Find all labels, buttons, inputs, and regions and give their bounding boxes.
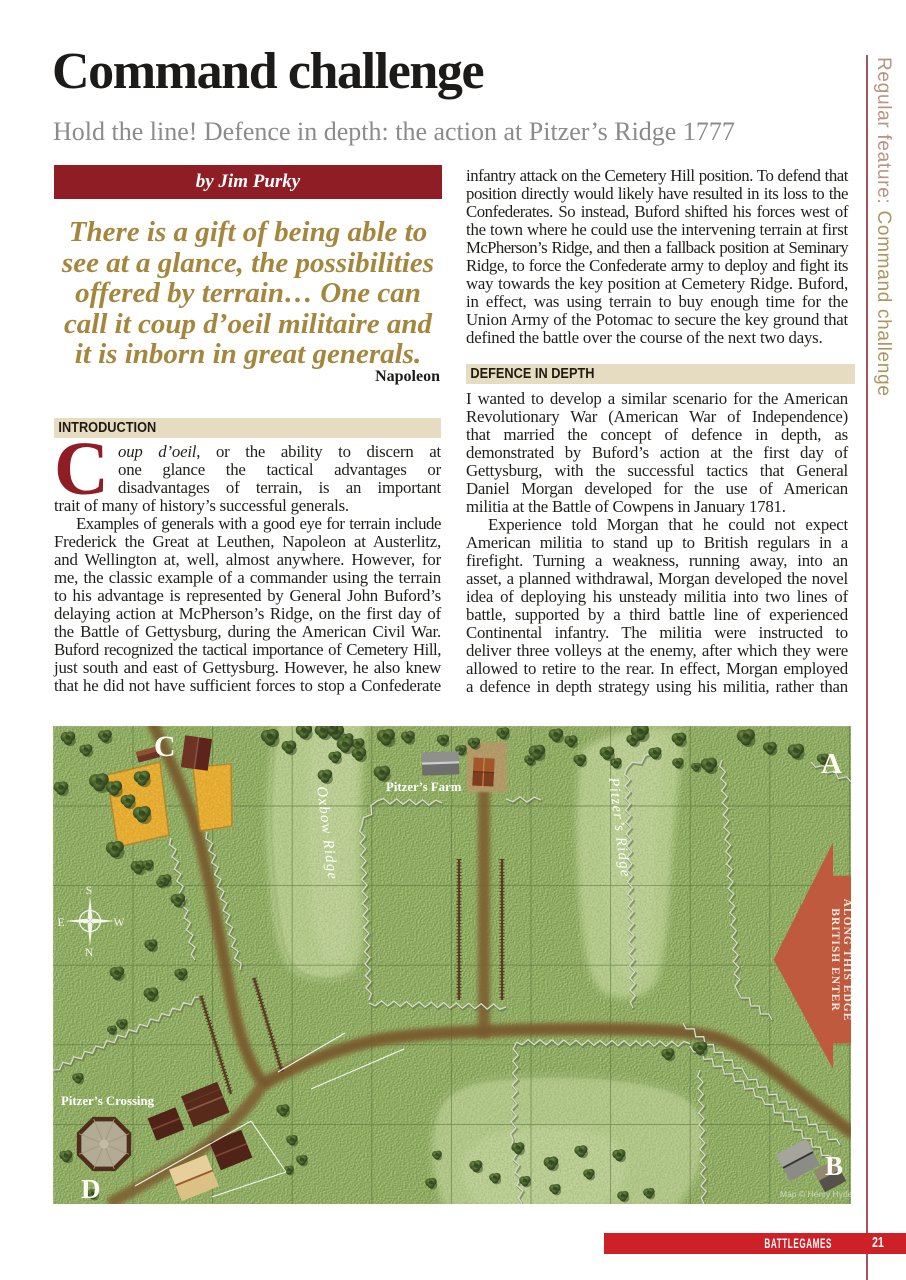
svg-text:B: B (825, 1151, 843, 1181)
svg-text:Pitzer’s Farm: Pitzer’s Farm (386, 780, 462, 794)
svg-text:C: C (154, 730, 176, 763)
svg-text:D: D (81, 1174, 101, 1204)
svg-text:Map © Henry Hyde: Map © Henry Hyde (780, 1189, 851, 1199)
svg-text:S: S (86, 885, 92, 897)
svg-text:E: E (57, 917, 64, 929)
svg-text:W: W (114, 917, 125, 929)
svg-text:ALONG THIS EDGE: ALONG THIS EDGE (841, 899, 851, 1022)
svg-text:A: A (821, 748, 842, 780)
svg-text:Pitzer’s Crossing: Pitzer’s Crossing (61, 1094, 155, 1108)
svg-text:BRITISH ENTER: BRITISH ENTER (829, 908, 841, 1011)
svg-text:N: N (85, 947, 94, 959)
